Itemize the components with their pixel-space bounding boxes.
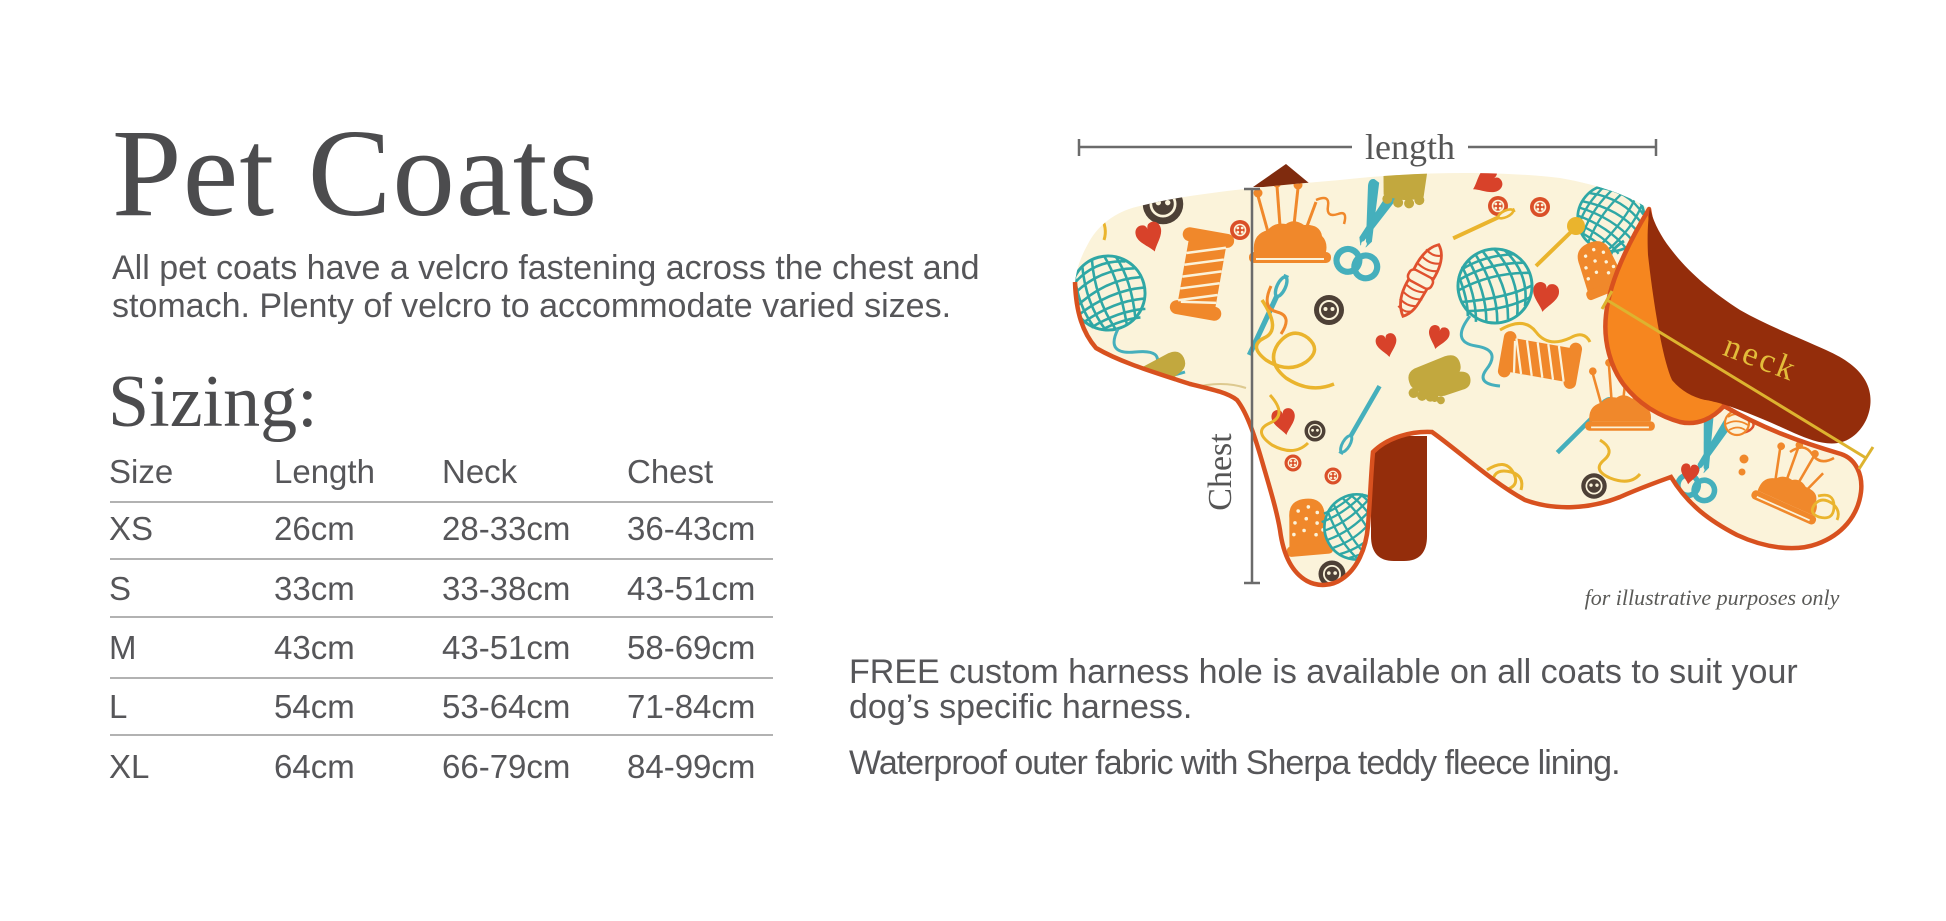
svg-text:for illustrative purposes only: for illustrative purposes only (1585, 585, 1840, 610)
svg-text:length: length (1365, 127, 1455, 167)
svg-text:Chest: Chest (1202, 433, 1239, 511)
